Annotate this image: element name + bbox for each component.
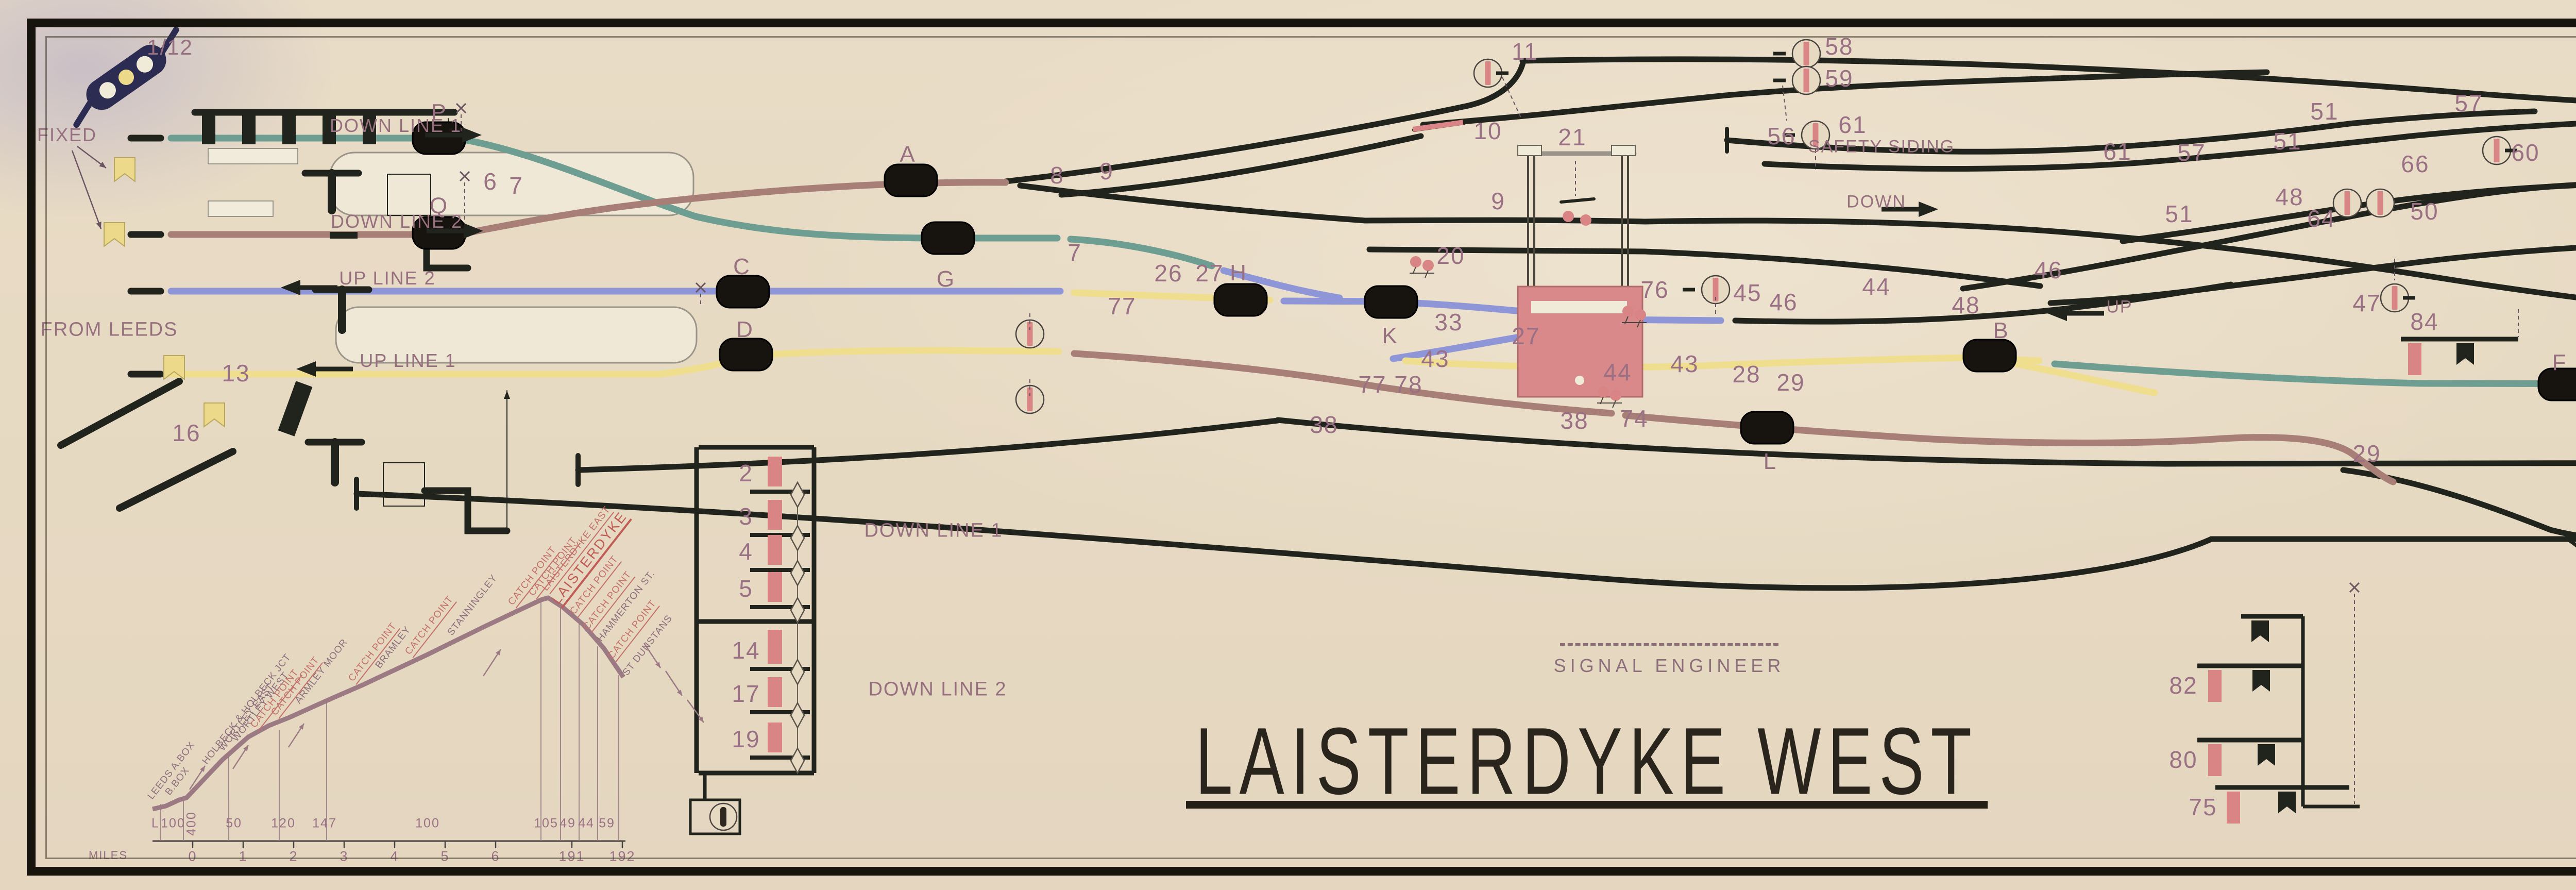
mile-label: 0 [188,849,197,865]
signal-number: 78 [1394,371,1422,398]
grade-label: 147 [312,816,337,831]
lever-number: 19 [732,725,760,753]
blob-letter: G [937,266,955,292]
signal-number: 33 [1434,308,1463,336]
semaphore-signal-icon [2408,343,2421,375]
signal-number: 74 [1620,405,1648,432]
signal-number: 75 [2189,793,2217,821]
signal-number: 45 [1733,279,1761,307]
semaphore-signal-icon [2227,792,2240,824]
signal-number: 9 [1099,157,1114,185]
x-mark [460,172,469,181]
signal-number: 84 [2410,308,2438,335]
signal-number: 48 [2275,183,2303,211]
engineer-dashed-line [1560,643,1778,646]
blob-letter: B [1993,318,2009,344]
grade-label: 59 [599,816,615,831]
lever-number: 17 [732,680,760,708]
signal-number: 48 [1952,291,1980,319]
title-underline [1186,801,1988,809]
ground-disc-icon [1422,260,1434,271]
signal-number: 64 [2307,205,2335,232]
ground-disc-icon [1598,386,1609,397]
route-label: DOWN [1846,192,1906,212]
lamp-blob-G [922,222,974,254]
signal-number: 61 [2103,138,2131,165]
signal-number: 80 [2169,746,2197,774]
signal-number: 27 [1512,322,1540,350]
black-flag-icon [2456,343,2474,365]
lever-group-label: DOWN LINE 2 [868,679,1007,701]
lever-number: 2 [739,459,753,487]
disc-signal-bar [2345,191,2350,215]
signal-number: 9 [1491,187,1505,215]
disc-signal-bar [2494,139,2500,162]
signal-number: 20 [1436,242,1465,270]
route-label: UP LINE 1 [360,350,456,372]
black-flag-icon [2258,744,2275,766]
signal-number: 46 [2034,256,2062,284]
mile-label: 4 [390,849,399,865]
direction-arrow-head [296,361,316,377]
signal-number: 7 [1067,239,1082,266]
blob-letter: P [431,99,447,125]
mile-label: 3 [340,849,348,865]
signal-number: 51 [2165,200,2193,228]
signal-number: 57 [2454,89,2483,117]
route-label: UP LINE 2 [339,267,435,289]
grade-label: L [151,816,160,831]
signal-number: 82 [2169,671,2197,699]
disc-signal-bar [1485,61,1491,85]
ground-disc-icon [1410,256,1421,267]
lever-icon [768,677,782,707]
signal-number: 10 [1473,117,1502,145]
signal-number: 50 [2410,197,2438,225]
pointer-arrowhead [99,162,106,168]
disc-signal-bar [1804,42,1809,65]
lamp-blob-B [1963,340,2016,372]
corner-signal-label: 1/12 [147,35,193,60]
signal-number: 13 [222,359,250,387]
grade-label: 120 [271,816,296,831]
signal-number: 61 [1838,111,1867,139]
lamp-blob-L [1741,412,1793,444]
engineer-label: SIGNAL ENGINEER [1554,655,1785,677]
direction-arrow-head [281,280,300,295]
miles-axis-label: MILES [89,849,128,862]
signal-number: 43 [1670,350,1699,378]
disc-signal-bar [2392,286,2398,310]
signal-number: 11 [1512,38,1538,65]
blob-letter: Q [430,193,448,219]
signal-number: 16 [172,419,200,447]
signal-number: 27 [1195,259,1224,287]
lever-icon [768,630,782,664]
lever-icon [768,500,782,530]
signal-number: 29 [2352,440,2381,467]
signal-number: 44 [1603,358,1632,386]
direction-arrow-head [2047,306,2067,321]
signal-number: 46 [1769,288,1798,316]
yellow-chevron-signal-icon [204,403,225,427]
route-label: FROM LEEDS [40,319,178,341]
lamp-blob-D [720,339,772,371]
pointer-arrowhead [96,222,101,229]
signal-number: 58 [1825,32,1853,60]
signal-number: 43 [1421,345,1449,373]
lever-number: 14 [732,636,760,664]
grade-label: 50 [226,816,242,831]
signal-number: 76 [1640,276,1669,304]
blob-letter: L [1764,449,1777,475]
signal-number: 38 [1310,411,1338,439]
signal-number: 26 [1154,259,1182,287]
signal-number: 29 [1776,368,1805,396]
signal-number: 66 [2401,150,2429,178]
grade-label: 100 [415,816,440,831]
blob-letter: D [736,317,754,343]
signal-number: 60 [2511,139,2539,166]
x-mark [696,283,705,292]
disc-signal-bar [2378,191,2383,215]
signal-number: 51 [2273,127,2301,155]
mile-label: 5 [440,849,449,865]
black-flag-icon [2278,792,2296,813]
lever-group-label: DOWN LINE 1 [864,520,1003,542]
semaphore-signal-icon [2208,670,2222,702]
semaphore-signal-icon [2208,744,2222,776]
ground-disc-icon [1622,306,1634,317]
lever-icon [768,723,782,752]
lever-number: 3 [739,502,753,530]
lever-number: 5 [739,575,753,602]
signal-number: 21 [1558,123,1586,151]
signal-number: 59 [1825,64,1853,92]
direction-arrow-head [464,223,483,239]
blob-letter: A [900,142,916,167]
route-label: SAFETY SIDING [1808,137,1955,157]
signal-number: 77 [1108,292,1136,320]
ground-disc-icon [1610,390,1621,401]
grade-label: 44 [578,816,595,831]
reference-line [1783,86,1787,121]
signal-number: 28 [1732,360,1760,388]
x-mark [456,104,466,113]
route-label: UP [2106,297,2132,317]
lamp-blob-A [885,164,937,196]
pointer-line [72,150,101,229]
signal-box-diagram: FIXEDFROM LEEDSDOWN LINE 1DOWN LINE 2UP … [0,0,2576,890]
lamp-blob-K [1365,286,1417,318]
lever-number: 4 [739,538,753,565]
signal-number: 6 [483,167,498,195]
route-label: FIXED [37,124,97,146]
grade-label: 400 [184,811,199,836]
signal-number: 44 [1862,273,1890,300]
lamp-blob-C [717,276,769,308]
reference-line [1502,77,1521,117]
disc-signal-bar [1027,388,1033,411]
blob-letter: H [1230,260,1247,286]
mile-label: 192 [609,849,635,865]
lever-icon [768,457,782,486]
yellow-chevron-signal-icon [114,158,135,181]
pink-bar [1413,120,1463,132]
signal-number: 8 [1050,161,1064,189]
grade-label: 49 [560,816,576,831]
mile-label: 191 [558,849,585,865]
lever-icon [768,572,782,602]
black-flag-icon [2252,670,2270,692]
grade-label: 100 [161,816,185,831]
black-flag-icon [2251,620,2269,642]
page-title: LAISTERDYKE WEST [1195,707,1978,816]
mile-label: 6 [491,849,500,865]
disc-signal-bar [1027,322,1033,346]
blob-letter: C [733,254,751,280]
blob-letter: K [1382,323,1398,349]
signal-number: 51 [2310,97,2338,125]
signal-number: 7 [509,172,523,199]
lever-icon [768,535,782,565]
signal-number: 77 [1358,371,1386,398]
mile-label: 2 [289,849,298,865]
direction-arrow-head [462,127,482,143]
mile-label: 1 [239,849,247,865]
grade-label: 105 [534,816,558,831]
direction-arrow-head [1919,201,1938,217]
signal-number: 56 [1767,122,1795,150]
yellow-chevron-signal-icon [104,223,125,246]
signal-number: 38 [1560,407,1588,434]
disc-signal-bar [1804,69,1809,92]
signal-number: 57 [2177,139,2206,166]
ground-disc-icon [1635,309,1646,321]
x-mark [2350,583,2359,592]
lamp-blob-H [1214,284,1267,316]
yellow-chevron-signal-icon [164,356,184,379]
signal-number: 47 [2352,289,2381,317]
blob-letter: F [2552,350,2567,376]
